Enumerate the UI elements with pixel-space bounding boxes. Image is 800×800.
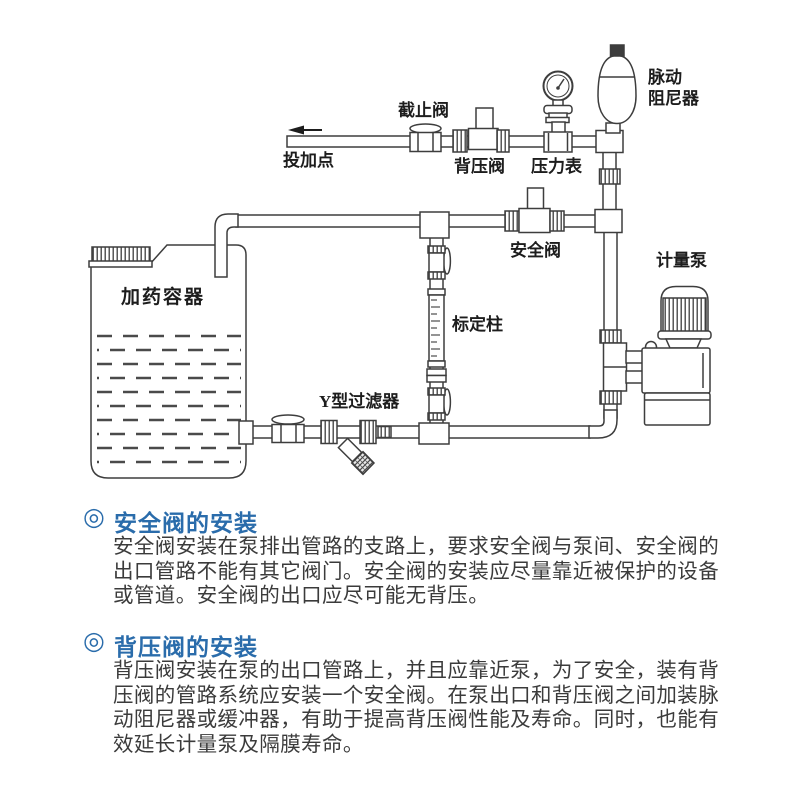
section1-line3: 或管道。安全阀的出口应尽可能无背压。	[113, 584, 773, 609]
safety-valve-symbol	[505, 188, 564, 233]
label-stop-valve: 截止阀	[398, 101, 449, 121]
calibration-column-assembly	[419, 246, 450, 444]
pulsation-damper-symbol	[598, 45, 636, 133]
section2-bullet-icon: ◎	[83, 629, 105, 654]
label-pulsation-damper-line2: 阻尼器	[648, 88, 699, 109]
pressure-gauge-symbol	[544, 72, 573, 153]
section1-title: 安全阀的安装	[114, 504, 258, 538]
tank-outlet-fitting	[239, 421, 253, 444]
section2-line4: 效延长计量泵及隔膜寿命。	[113, 733, 773, 758]
section1-line2: 出口管路不能有其它阀门。安全阀的安装应尽量靠近被保护的设备	[113, 560, 773, 585]
section1-line1: 安全阀安装在泵排出管路的支路上，要求安全阀与泵间、安全阀的	[113, 535, 773, 560]
tank-cap	[89, 247, 152, 267]
section1-paragraph: 安全阀安装在泵排出管路的支路上，要求安全阀与泵间、安全阀的 出口管路不能有其它阀…	[113, 535, 773, 609]
section2-title: 背压阀的安装	[114, 628, 258, 662]
label-dosing-point: 投加点	[283, 151, 334, 171]
label-safety-valve: 安全阀	[510, 241, 561, 261]
back-pressure-valve-symbol	[453, 108, 509, 152]
section2-paragraph: 背压阀安装在泵的出口管路上，并且应靠近泵，为了安全，装有背 压阀的管路系统应安装…	[113, 659, 773, 757]
standpipe-top-tee	[420, 212, 449, 238]
label-dosing-tank: 加药容器	[121, 287, 205, 310]
label-pressure-gauge: 压力表	[531, 157, 582, 177]
second-pipe-right-tee	[595, 210, 622, 233]
stop-valve-symbol	[410, 124, 441, 152]
pipes	[215, 136, 617, 438]
flow-arrow	[288, 126, 322, 135]
section2-line2: 压阀的管路系统应安装一个安全阀。在泵出口和背压阀之间加装脉	[113, 684, 773, 709]
pump-connection-fittings	[600, 330, 643, 404]
page: 投加点 截止阀 背压阀 压力表 脉动 阻尼器 安全阀 计量泵 加药容器 标定柱 …	[0, 0, 800, 800]
section2-line1: 背压阀安装在泵的出口管路上，并且应靠近泵，为了安全，装有背	[113, 659, 773, 684]
metering-pump-symbol	[642, 287, 711, 426]
label-y-strainer: Y型过滤器	[319, 392, 399, 412]
label-metering-pump: 计量泵	[656, 251, 707, 271]
section1-bullet-icon: ◎	[83, 505, 105, 530]
label-calibration-column: 标定柱	[452, 315, 503, 335]
piping-diagram: 投加点 截止阀 背压阀 压力表 脉动 阻尼器 安全阀 计量泵 加药容器 标定柱 …	[0, 0, 800, 495]
ball-valve-symbol	[272, 415, 304, 443]
dosing-tank-symbol	[89, 245, 246, 478]
label-back-pressure-valve: 背压阀	[454, 157, 505, 177]
section2-line3: 动阻尼器或缓冲器，有助于提高背压阀性能及寿命。同时，也能有	[113, 708, 773, 733]
label-pulsation-damper: 脉动 阻尼器	[648, 67, 699, 109]
label-pulsation-damper-line1: 脉动	[648, 67, 699, 88]
